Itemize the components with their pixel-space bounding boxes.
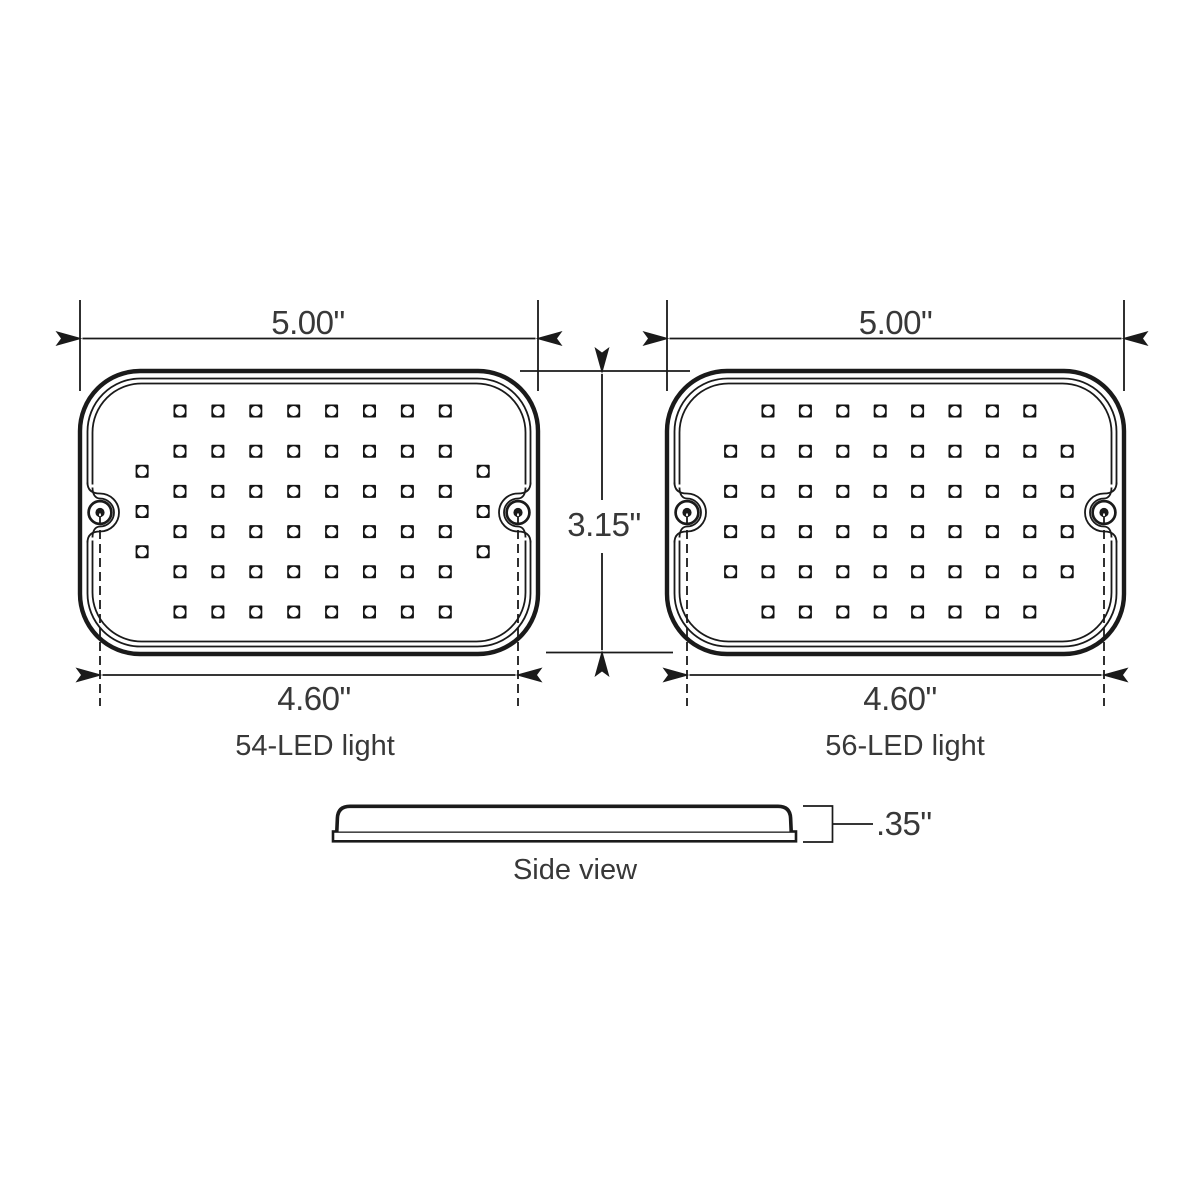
led-lens <box>950 607 960 617</box>
led-lens <box>251 527 261 537</box>
led-lens <box>478 466 488 476</box>
led-lens <box>1025 567 1035 577</box>
led-lens <box>1025 406 1035 416</box>
side-view: .35" Side view <box>333 805 932 886</box>
led-lens <box>289 607 299 617</box>
led-lens <box>875 527 885 537</box>
led-lens <box>289 406 299 416</box>
led-lens <box>440 406 450 416</box>
led-lens <box>213 527 223 537</box>
led-lens <box>987 527 997 537</box>
led-lens <box>875 406 885 416</box>
dim-label-left-overall-width: 5.00" <box>271 304 344 341</box>
led-lens <box>365 406 375 416</box>
side-view-lens-profile <box>337 806 791 831</box>
led-lens <box>251 607 261 617</box>
led-lens <box>763 486 773 496</box>
led-lens <box>175 406 185 416</box>
led-lens <box>950 527 960 537</box>
led-lens <box>289 446 299 456</box>
led-lens <box>838 607 848 617</box>
led-lens <box>726 446 736 456</box>
led-lens <box>402 607 412 617</box>
led-lens <box>913 486 923 496</box>
led-lens <box>838 567 848 577</box>
led-lens <box>327 406 337 416</box>
led-lens <box>289 486 299 496</box>
led-lens <box>251 486 261 496</box>
led-lens <box>838 446 848 456</box>
led-lens <box>800 607 810 617</box>
led-lens <box>913 607 923 617</box>
led-lens <box>1062 486 1072 496</box>
led-lens <box>726 527 736 537</box>
led-lens <box>175 567 185 577</box>
led-lens <box>402 406 412 416</box>
led-lens <box>402 446 412 456</box>
led-lens <box>1062 527 1072 537</box>
side-view-caption: Side view <box>513 854 638 886</box>
led-lens <box>327 486 337 496</box>
led-lens <box>950 486 960 496</box>
led-lens <box>913 406 923 416</box>
led-lens <box>440 527 450 537</box>
led-lens <box>365 527 375 537</box>
led-lens <box>175 446 185 456</box>
led-lens <box>440 486 450 496</box>
led-lens <box>800 486 810 496</box>
led-lens <box>327 446 337 456</box>
housing-outer-edge <box>80 371 538 654</box>
led-lens <box>327 527 337 537</box>
led-lens <box>763 406 773 416</box>
led-lens <box>365 446 375 456</box>
led-lens <box>987 567 997 577</box>
led-lens <box>1025 607 1035 617</box>
led-lens <box>763 607 773 617</box>
led-lens <box>213 406 223 416</box>
right-light-caption: 56-LED light <box>825 730 985 762</box>
led-lens <box>913 446 923 456</box>
led-lens <box>1025 527 1035 537</box>
led-lens <box>365 607 375 617</box>
led-lens <box>987 446 997 456</box>
56-led-light-front-view <box>667 371 1124 654</box>
led-lens <box>763 527 773 537</box>
led-lens <box>251 406 261 416</box>
led-lens <box>1025 486 1035 496</box>
led-lens <box>987 607 997 617</box>
led-lens <box>289 527 299 537</box>
led-lens <box>478 547 488 557</box>
led-lens <box>289 567 299 577</box>
led-lens <box>950 406 960 416</box>
dim-label-right-overall-width: 5.00" <box>859 304 932 341</box>
led-lens <box>838 527 848 537</box>
led-lens <box>402 486 412 496</box>
thickness-bracket <box>803 806 833 842</box>
led-lens <box>950 446 960 456</box>
led-lens <box>175 486 185 496</box>
led-lens <box>213 607 223 617</box>
led-lens <box>440 446 450 456</box>
54-led-light-front-view <box>80 371 538 654</box>
led-lens <box>726 486 736 496</box>
led-lens <box>213 486 223 496</box>
led-lens <box>875 446 885 456</box>
led-lens <box>987 486 997 496</box>
led-lens <box>365 486 375 496</box>
led-lens <box>327 567 337 577</box>
dim-label-height: 3.15" <box>567 506 640 543</box>
led-lens <box>440 567 450 577</box>
led-lens <box>137 547 147 557</box>
led-lens <box>402 567 412 577</box>
led-light-dimension-diagram: 5.00" 5.00" 3.15" 4.60" 54-LED light 4.6… <box>0 0 1200 1200</box>
led-lens <box>763 567 773 577</box>
led-lens <box>213 446 223 456</box>
led-lens <box>875 567 885 577</box>
led-lens <box>950 567 960 577</box>
led-lens <box>365 567 375 577</box>
led-lens <box>875 486 885 496</box>
dim-label-thickness: .35" <box>876 805 932 842</box>
led-lens <box>913 567 923 577</box>
led-lens <box>1025 446 1035 456</box>
led-lens <box>800 567 810 577</box>
led-lens <box>987 406 997 416</box>
led-lens <box>800 406 810 416</box>
led-lens <box>875 607 885 617</box>
dim-label-right-mount-span: 4.60" <box>863 680 936 717</box>
led-lens <box>763 446 773 456</box>
led-lens <box>440 607 450 617</box>
led-lens <box>913 527 923 537</box>
led-lens <box>838 486 848 496</box>
led-lens <box>1062 567 1072 577</box>
led-lens <box>1062 446 1072 456</box>
led-lens <box>175 607 185 617</box>
led-lens <box>726 567 736 577</box>
led-lens <box>800 446 810 456</box>
led-lens <box>213 567 223 577</box>
led-lens <box>175 527 185 537</box>
left-light-caption: 54-LED light <box>235 730 395 762</box>
housing-outer-edge <box>667 371 1124 654</box>
led-lens <box>327 607 337 617</box>
led-lens <box>251 446 261 456</box>
led-lens <box>402 527 412 537</box>
led-lens <box>800 527 810 537</box>
led-lens <box>137 507 147 517</box>
led-lens <box>838 406 848 416</box>
led-lens <box>137 466 147 476</box>
led-lens <box>478 507 488 517</box>
side-view-base-flange <box>333 832 796 842</box>
dim-label-left-mount-span: 4.60" <box>277 680 350 717</box>
led-lens <box>251 567 261 577</box>
